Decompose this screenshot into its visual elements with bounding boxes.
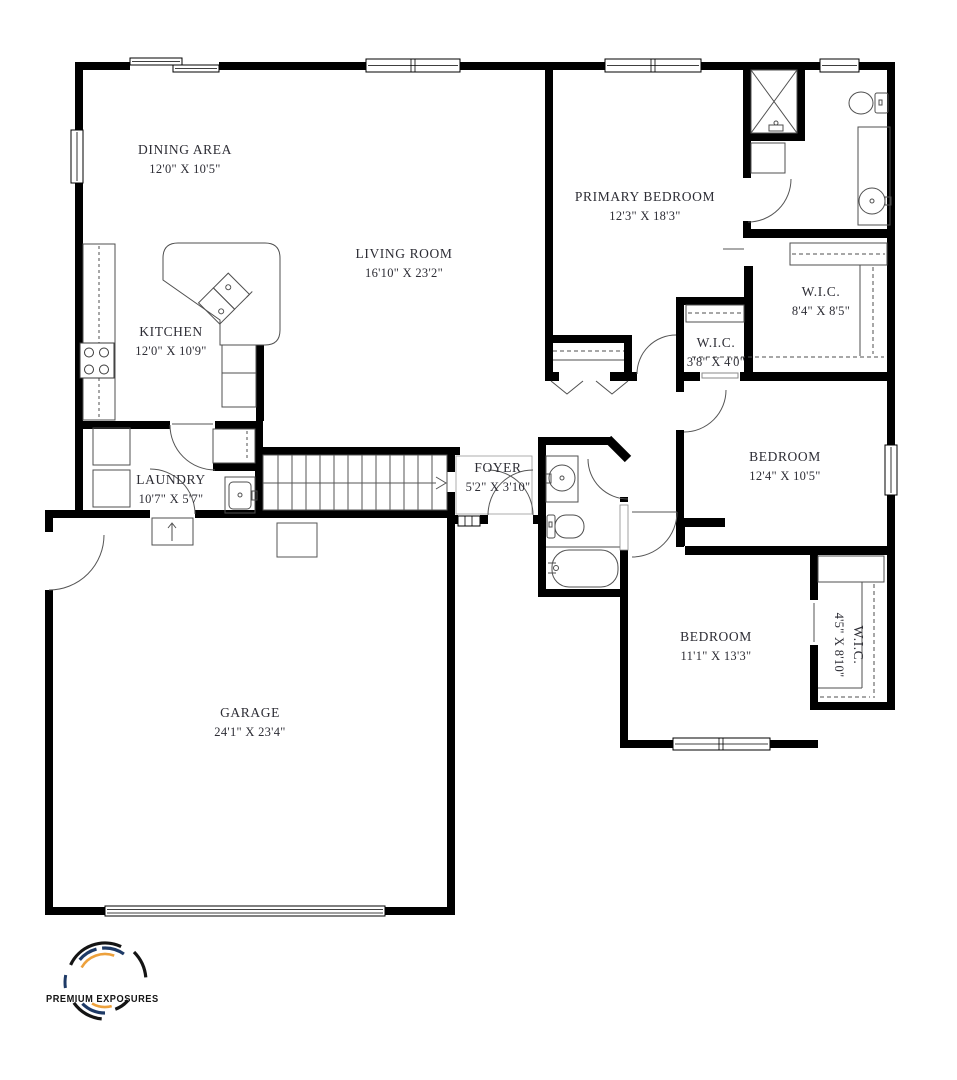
- room-label-foyer: FOYER 5'2" X 3'10": [466, 460, 531, 494]
- closet-door-chevron: [551, 381, 583, 394]
- window-living-double: [366, 59, 460, 72]
- bedroom3-door-arc: [632, 512, 677, 557]
- door-leaf: [620, 505, 628, 550]
- toilet-icon: [547, 515, 584, 538]
- stove-icon: [80, 343, 114, 378]
- toilet-icon: [849, 92, 888, 114]
- window-bedroom2-right: [885, 445, 897, 495]
- garage-entry-step: [152, 518, 193, 545]
- room-label-dining-area: DINING AREA 12'0" X 10'5": [138, 142, 232, 176]
- room-label-primary-bedroom: PRIMARY BEDROOM 12'3" X 18'3": [575, 189, 715, 223]
- shower-icon: [751, 70, 797, 133]
- bathroom-door-arc: [588, 459, 628, 499]
- premium-exposures-wordmark: PREMIUM EXPOSURES: [46, 993, 160, 1005]
- closet-door-chevron: [596, 381, 628, 394]
- garage-side-door-arc: [49, 535, 104, 590]
- room-label-living-room: LIVING ROOM 16'10" X 23'2": [356, 246, 453, 280]
- bathtub-icon: [546, 547, 620, 587]
- room-label-laundry: LAUNDRY 10'7" X 5'7": [136, 472, 205, 506]
- window-dining-slider: [130, 58, 219, 72]
- dryer-icon: [93, 470, 130, 507]
- garage-door: [105, 906, 385, 916]
- window-bath-small: [820, 59, 859, 72]
- kitchen-base-cabinet: [222, 345, 256, 373]
- premium-exposures-logo-icon: [40, 933, 190, 1043]
- linen-shelf: [751, 143, 785, 173]
- room-label-bedroom-2: BEDROOM 12'4" X 10'5": [749, 449, 821, 483]
- room-label-bedroom-3: BEDROOM 11'1" X 13'3": [680, 629, 752, 663]
- understairs-storage: [277, 523, 317, 557]
- window-primary-double: [605, 59, 701, 72]
- laundry-door-arc: [170, 425, 215, 470]
- island-sink-icon: [199, 270, 253, 324]
- room-label-wic-bedroom-3: W.I.C. 4'5" X 8'10": [832, 613, 866, 678]
- washer-icon: [93, 428, 130, 465]
- stairs: [263, 455, 447, 557]
- primary-bath-door-arc: [748, 179, 791, 222]
- bedroom2-door-arc: [684, 390, 726, 432]
- sliding-door: [702, 373, 738, 378]
- floorplan-page: DINING AREA 12'0" X 10'5" KITCHEN 12'0" …: [0, 0, 957, 1080]
- room-label-kitchen: KITCHEN 12'0" X 10'9": [135, 324, 206, 358]
- vanity-sink-icon: [546, 456, 578, 502]
- room-label-garage: GARAGE 24'1" X 23'4": [214, 705, 285, 739]
- window-foyer-sidelite: [458, 516, 480, 526]
- utility-sink-icon: [225, 477, 257, 513]
- kitchen-counter: [83, 244, 115, 420]
- window-dining-left: [71, 130, 83, 183]
- pantry-closet: [213, 429, 255, 463]
- room-label-wic-hall: W.I.C. 3'8" X 4'0": [687, 335, 745, 369]
- primary-bedroom-door-arc: [637, 335, 676, 374]
- wic-hall-shelf: [686, 305, 744, 322]
- kitchen-base-cabinet: [222, 373, 256, 407]
- vanity-sink-icon: [858, 127, 891, 225]
- window-bedroom3-double: [673, 738, 770, 750]
- room-label-wic-primary: W.I.C. 8'4" X 8'5": [792, 284, 850, 318]
